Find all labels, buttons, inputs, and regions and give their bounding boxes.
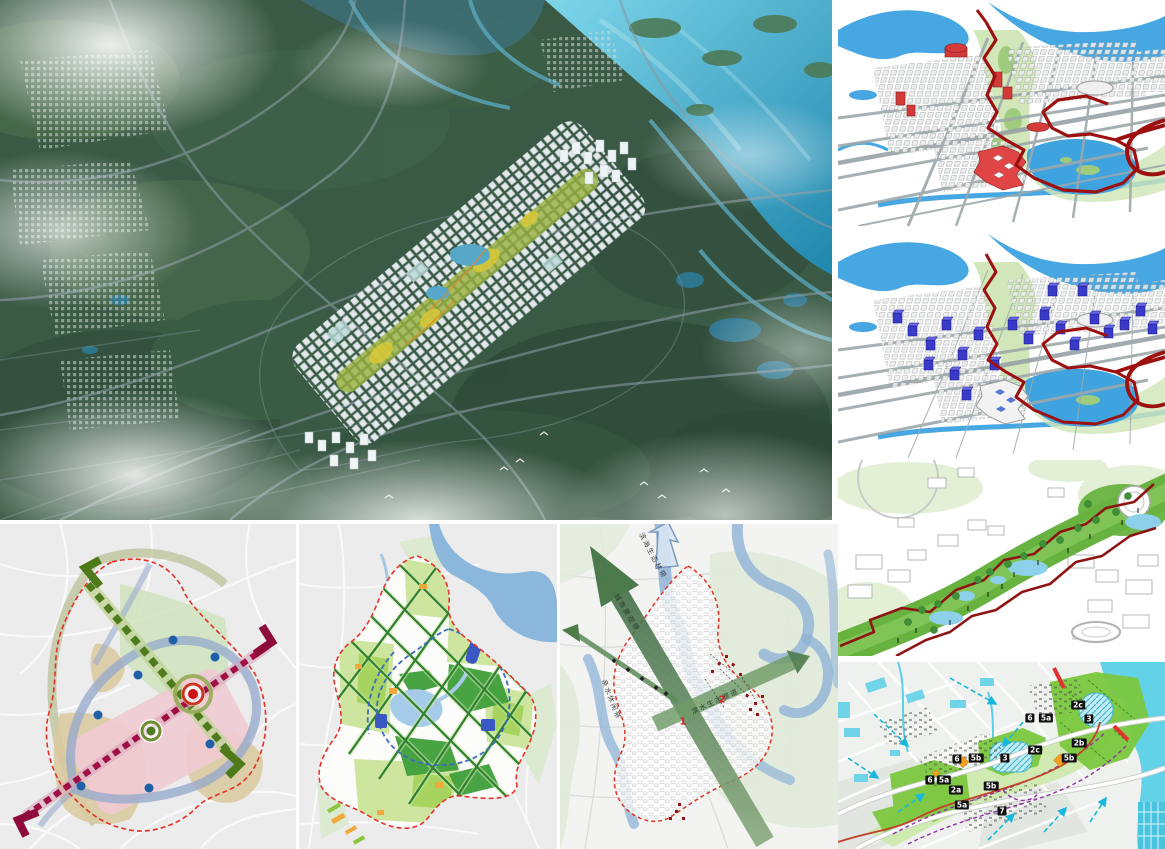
parcel-tag: 2c	[1028, 746, 1042, 755]
parcel-tag: 6	[1025, 714, 1034, 723]
flow-number: 1	[680, 717, 687, 728]
parcel-tag: 3	[1000, 754, 1009, 763]
corridor-axon-graphic	[838, 460, 1165, 656]
parcel-tag: 5a	[1039, 714, 1053, 723]
green-network-graphic	[299, 524, 557, 849]
parcel-tag: 6	[925, 776, 934, 785]
urban-design-collage: 6 5a 2c 3 2c 2b 6 5b 3 5b 6 5a 2a 5b 5a …	[0, 0, 1165, 849]
parcel-tag: 2b	[1072, 739, 1087, 748]
green-corridor-axon	[838, 460, 1165, 656]
green-space-network-plan	[299, 524, 557, 849]
parcel-tag: 3	[1084, 715, 1093, 724]
parcel-tag: 5b	[1062, 754, 1077, 763]
parcel-tag: 5a	[937, 776, 951, 785]
parcel-tag: 6	[952, 755, 961, 764]
parcel-tag: 2c	[1071, 701, 1085, 710]
flow-number: 2	[719, 695, 726, 706]
red-landmark-graphic	[838, 0, 1165, 226]
parcel-tag: 5b	[984, 782, 999, 791]
parcel-tag: 7	[997, 807, 1006, 816]
landmark-diagram-red	[838, 0, 1165, 226]
parcel-tag: 2a	[949, 786, 963, 795]
blue-landmark-graphic	[838, 228, 1165, 458]
parcel-tag: 5a	[955, 801, 969, 810]
aerial-render-graphic	[0, 0, 832, 520]
landmark-diagram-blue	[838, 228, 1165, 458]
parcel-tag: 5b	[969, 754, 984, 763]
aerial-masterplan-render	[0, 0, 832, 520]
concept-diagram-graphic	[0, 524, 296, 849]
structure-concept-diagram	[0, 524, 296, 849]
